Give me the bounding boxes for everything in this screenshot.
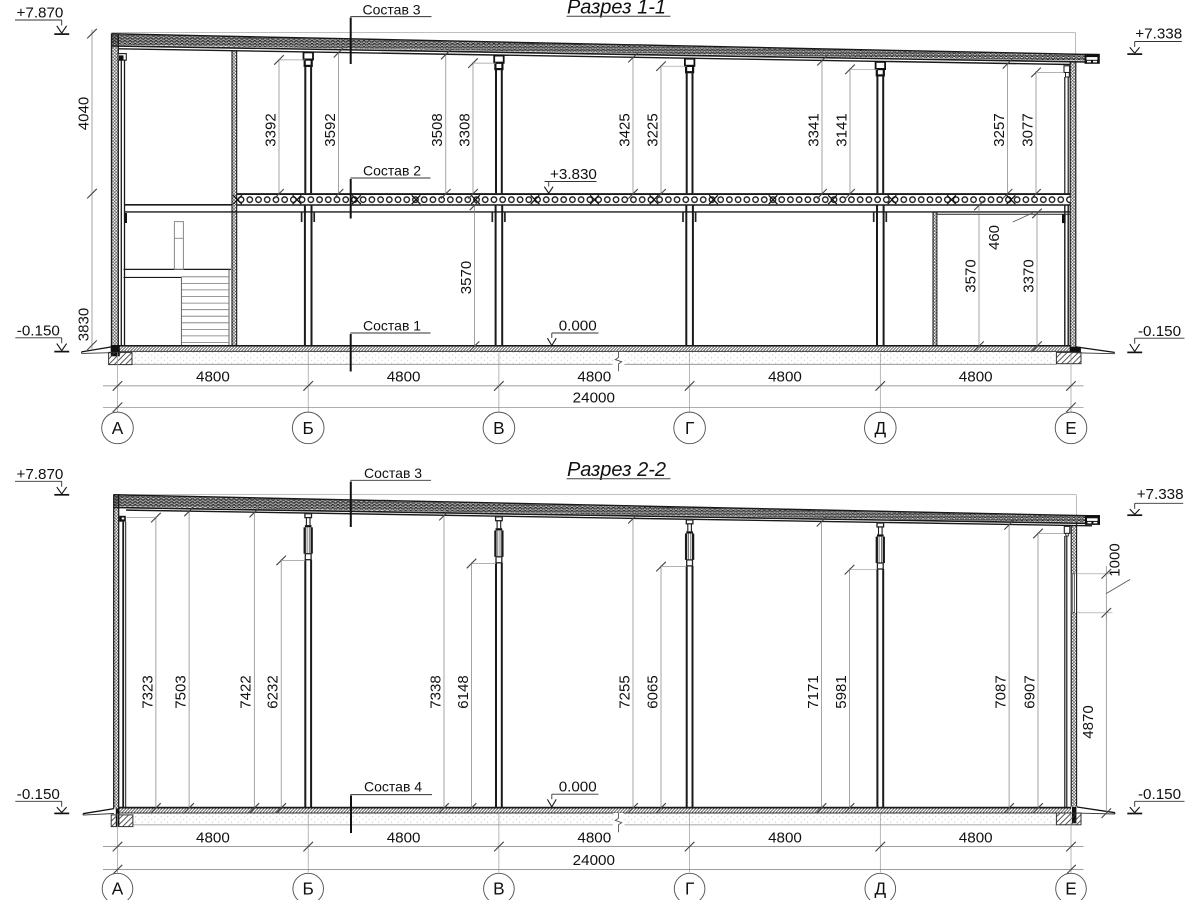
svg-text:В: В — [493, 879, 504, 899]
svg-text:4870: 4870 — [1080, 705, 1097, 738]
svg-text:24000: 24000 — [573, 852, 615, 869]
svg-text:+7.338: +7.338 — [1135, 25, 1182, 42]
svg-text:3570: 3570 — [458, 261, 475, 294]
svg-text:3570: 3570 — [962, 259, 979, 292]
svg-text:-0.150: -0.150 — [1138, 323, 1181, 340]
svg-text:7087: 7087 — [993, 675, 1010, 708]
svg-text:4800: 4800 — [387, 829, 421, 846]
svg-text:А: А — [112, 879, 124, 899]
svg-text:7422: 7422 — [238, 675, 255, 708]
svg-text:3341: 3341 — [805, 113, 822, 146]
svg-text:4800: 4800 — [196, 369, 230, 386]
svg-text:6148: 6148 — [455, 675, 472, 708]
svg-text:Б: Б — [303, 418, 314, 438]
svg-text:+3.830: +3.830 — [550, 166, 597, 183]
svg-text:7171: 7171 — [805, 675, 822, 708]
svg-text:Г: Г — [685, 418, 694, 438]
svg-text:Состав 4: Состав 4 — [364, 778, 422, 794]
svg-text:4800: 4800 — [768, 369, 802, 386]
svg-text:460: 460 — [986, 225, 1003, 250]
svg-text:А: А — [112, 418, 124, 438]
svg-text:Б: Б — [303, 879, 314, 899]
svg-text:3141: 3141 — [833, 113, 850, 146]
svg-text:0.000: 0.000 — [559, 779, 597, 796]
svg-text:6232: 6232 — [265, 675, 282, 708]
svg-text:3370: 3370 — [1020, 259, 1037, 292]
svg-text:Д: Д — [874, 418, 886, 438]
svg-text:В: В — [493, 418, 504, 438]
svg-text:4800: 4800 — [196, 829, 230, 846]
svg-text:Д: Д — [874, 879, 886, 899]
svg-text:Состав 2: Состав 2 — [363, 163, 421, 179]
svg-text:Е: Е — [1065, 418, 1076, 438]
svg-text:4800: 4800 — [577, 829, 611, 846]
svg-text:3308: 3308 — [456, 113, 473, 146]
svg-text:3592: 3592 — [322, 113, 339, 146]
svg-text:Е: Е — [1065, 879, 1076, 899]
svg-text:Состав 3: Состав 3 — [364, 465, 422, 481]
svg-text:3392: 3392 — [262, 113, 279, 146]
svg-text:3225: 3225 — [644, 113, 661, 146]
svg-text:3425: 3425 — [616, 113, 633, 146]
svg-text:+7.870: +7.870 — [17, 466, 64, 483]
svg-text:Разрез 2-2: Разрез 2-2 — [567, 459, 666, 481]
svg-text:-0.150: -0.150 — [1138, 786, 1181, 803]
svg-text:-0.150: -0.150 — [17, 322, 60, 339]
svg-text:Состав 3: Состав 3 — [363, 1, 421, 17]
svg-text:4800: 4800 — [577, 369, 611, 386]
svg-text:3257: 3257 — [991, 113, 1008, 146]
svg-text:3077: 3077 — [1019, 113, 1036, 146]
svg-text:3508: 3508 — [429, 113, 446, 146]
svg-text:7503: 7503 — [173, 675, 190, 708]
svg-text:-0.150: -0.150 — [17, 786, 60, 803]
svg-text:4800: 4800 — [387, 369, 421, 386]
svg-text:4800: 4800 — [959, 369, 993, 386]
svg-text:4800: 4800 — [768, 829, 802, 846]
svg-text:Состав 1: Состав 1 — [363, 318, 421, 334]
svg-text:0.000: 0.000 — [559, 317, 597, 334]
svg-text:Г: Г — [685, 879, 694, 899]
svg-text:+7.870: +7.870 — [17, 5, 64, 22]
svg-text:+7.338: +7.338 — [1137, 486, 1184, 503]
svg-text:24000: 24000 — [573, 390, 615, 407]
svg-text:6907: 6907 — [1021, 675, 1038, 708]
svg-text:5981: 5981 — [833, 675, 850, 708]
svg-text:7323: 7323 — [139, 675, 156, 708]
svg-text:4040: 4040 — [75, 97, 92, 130]
svg-text:3830: 3830 — [75, 308, 92, 341]
svg-text:7255: 7255 — [616, 675, 633, 708]
svg-text:1000: 1000 — [1107, 543, 1124, 576]
svg-text:6065: 6065 — [644, 675, 661, 708]
svg-text:7338: 7338 — [427, 675, 444, 708]
svg-text:4800: 4800 — [959, 829, 993, 846]
